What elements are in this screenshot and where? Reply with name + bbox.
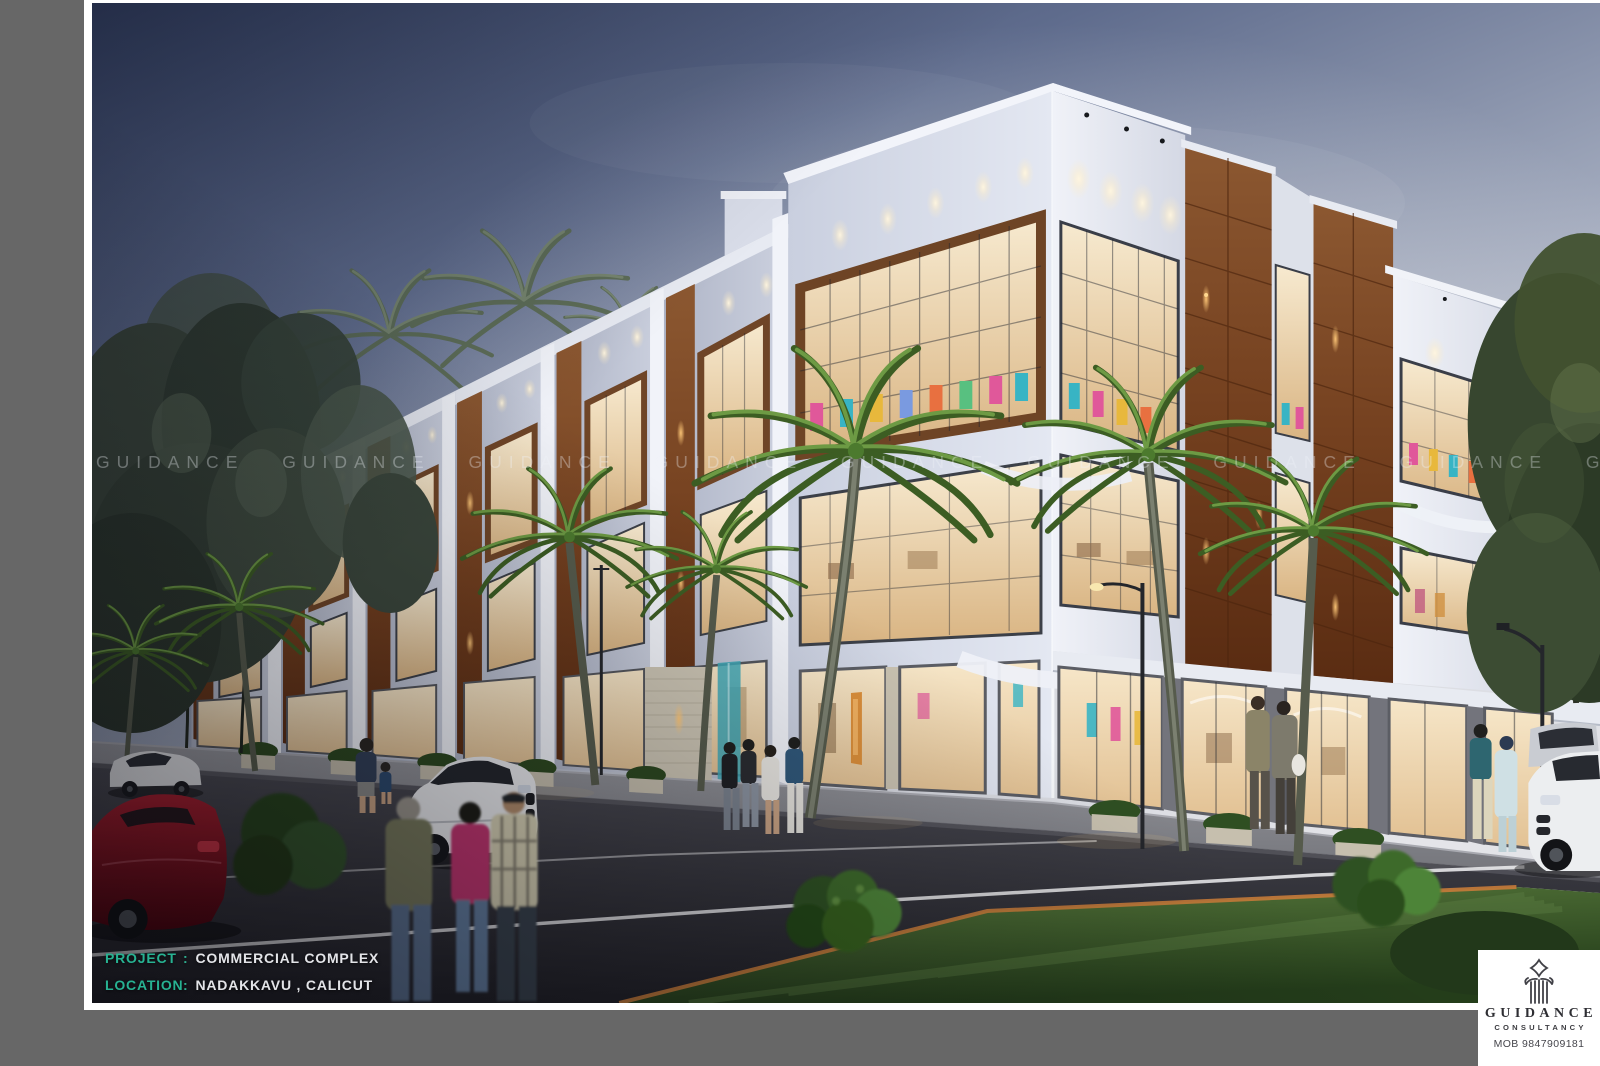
caption-project-row: PROJECT:COMMERCIAL COMPLEX <box>105 945 379 972</box>
location-value: NADAKKAVU , CALICUT <box>195 977 373 993</box>
architectural-rendering: GUIDANCE GUIDANCE GUIDANCE GUIDANCE GUID… <box>92 3 1600 1003</box>
photo-frame: GUIDANCE GUIDANCE GUIDANCE GUIDANCE GUID… <box>84 0 1600 1010</box>
project-separator: : <box>183 950 188 966</box>
logo-phone: MOB 9847909181 <box>1494 1038 1585 1050</box>
location-separator: : <box>183 977 188 993</box>
logo-name: GUIDANCE <box>1481 1006 1597 1022</box>
project-value: COMMERCIAL COMPLEX <box>195 950 379 966</box>
pillar-logo-icon <box>1516 957 1562 1005</box>
location-label: LOCATION <box>105 972 183 999</box>
vignette-top-left <box>92 3 1600 1003</box>
caption-location-row: LOCATION:NADAKKAVU , CALICUT <box>105 972 379 999</box>
consultancy-logo-box: GUIDANCE CONSULTANCY MOB 9847909181 <box>1478 950 1600 1066</box>
project-label: PROJECT <box>105 945 183 972</box>
project-caption: PROJECT:COMMERCIAL COMPLEX LOCATION:NADA… <box>105 945 379 999</box>
scene-illustration <box>92 3 1600 1003</box>
page-background: GUIDANCE GUIDANCE GUIDANCE GUIDANCE GUID… <box>0 0 1600 1066</box>
logo-subtitle: CONSULTANCY <box>1491 1023 1586 1032</box>
